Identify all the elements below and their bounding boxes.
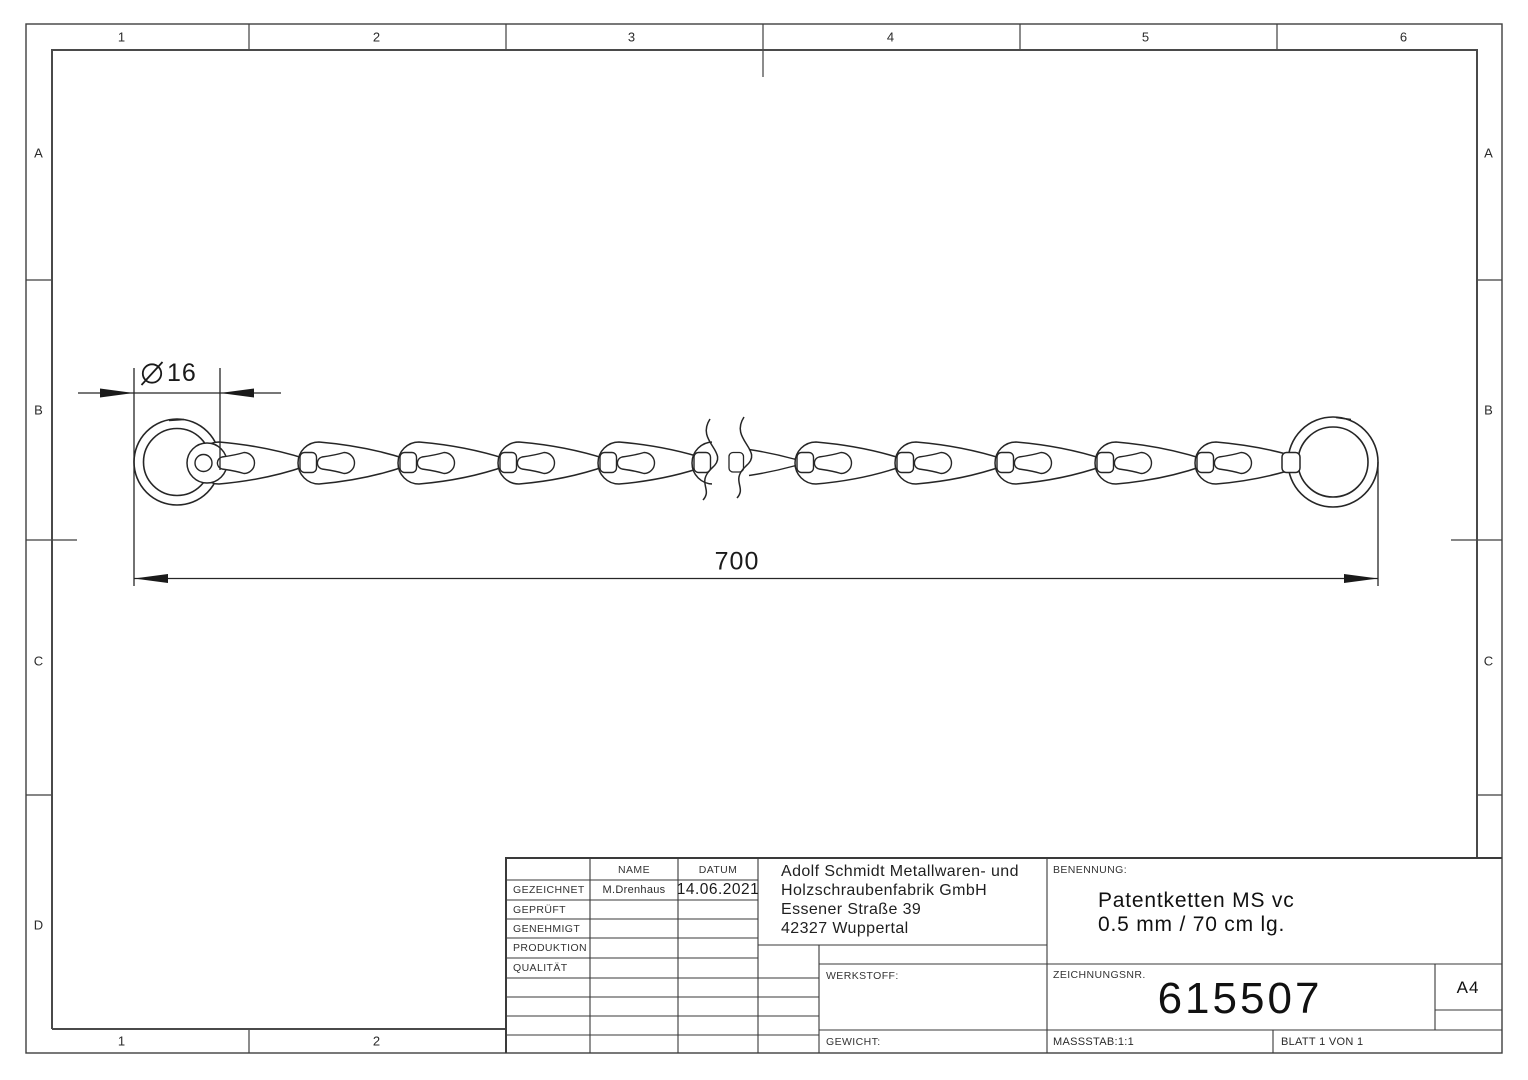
paper-size: A4	[1457, 978, 1480, 998]
werkstoff-label: WERKSTOFF:	[826, 970, 899, 982]
zone-col-label: 2	[373, 30, 381, 45]
part-title-line: 0.5 mm / 70 cm lg.	[1098, 913, 1295, 937]
chain-link-tongue	[300, 453, 317, 473]
zone-col-label-bottom: 2	[373, 1034, 381, 1049]
date-column-header: DATUM	[699, 864, 738, 876]
zone-row-label: B	[34, 403, 44, 418]
break-link-remnant	[729, 453, 744, 473]
gezeichnet-name: M.Drenhaus	[603, 884, 666, 896]
zeichnungsnr-label: ZEICHNUNGSNR.	[1053, 969, 1146, 981]
chain-link-tongue	[500, 453, 517, 473]
drawing-canvas	[0, 0, 1528, 1080]
drawing-number: 615507	[1158, 974, 1323, 1024]
zone-row-label: D	[34, 918, 44, 933]
zone-row-label-right: A	[1484, 146, 1494, 161]
name-column-header: NAME	[618, 864, 650, 876]
zone-col-label: 6	[1400, 30, 1408, 45]
company-line: 42327 Wuppertal	[781, 919, 1019, 938]
company-address: Adolf Schmidt Metallwaren- und Holzschra…	[781, 862, 1019, 938]
zone-row-label: C	[34, 654, 44, 669]
chain-link-tongue	[897, 453, 914, 473]
partial-link-tip	[749, 450, 798, 476]
massstab: MASSSTAB:1:1	[1053, 1036, 1134, 1048]
chain-link-tongue	[694, 453, 711, 473]
ring-connector-stub	[1282, 453, 1300, 473]
zone-row-label-right: C	[1484, 654, 1494, 669]
row-label-geprueft: GEPRÜFT	[513, 904, 566, 916]
chain-link-tongue	[1097, 453, 1114, 473]
chain-link-tongue	[797, 453, 814, 473]
zone-col-label-bottom: 1	[118, 1034, 126, 1049]
left-ring-split-mark	[169, 420, 184, 421]
chain-link-tongue	[1197, 453, 1214, 473]
zone-row-label-right: B	[1484, 403, 1494, 418]
chain-link-tongue	[600, 453, 617, 473]
inner-border	[52, 50, 1477, 1029]
chain-link-tongue	[997, 453, 1014, 473]
row-label-produktion: PRODUKTION	[513, 942, 587, 954]
company-line: Essener Straße 39	[781, 900, 1019, 919]
row-label-qualitaet: QUALITÄT	[513, 962, 568, 974]
zone-col-label: 3	[628, 30, 636, 45]
zone-col-label: 4	[887, 30, 895, 45]
zone-row-label: A	[34, 146, 44, 161]
diameter-symbol	[142, 362, 163, 385]
first-link-loop-hole	[195, 455, 212, 472]
zone-col-label: 5	[1142, 30, 1150, 45]
zone-col-label: 1	[118, 30, 126, 45]
blatt: BLATT 1 VON 1	[1281, 1036, 1363, 1048]
chain-links	[187, 417, 1307, 500]
row-label-genehmigt: GENEHMIGT	[513, 923, 580, 935]
gewicht-label: GEWICHT:	[826, 1036, 881, 1048]
gezeichnet-date: 14.06.2021	[677, 881, 760, 899]
row-label-gezeichnet: GEZEICHNET	[513, 884, 585, 896]
drawing-sheet: 1 2 3 4 5 6 1 2 A B C D A B C 16 700 NAM…	[0, 0, 1528, 1080]
part-title-line: Patentketten MS vc	[1098, 889, 1295, 913]
company-line: Adolf Schmidt Metallwaren- und	[781, 862, 1019, 881]
benennung-label: BENENNUNG:	[1053, 864, 1127, 876]
length-value: 700	[715, 548, 760, 577]
diameter-value: 16	[167, 359, 197, 388]
chain-link-tongue	[400, 453, 417, 473]
company-line: Holzschraubenfabrik GmbH	[781, 881, 1019, 900]
part-title: Patentketten MS vc 0.5 mm / 70 cm lg.	[1098, 889, 1295, 937]
